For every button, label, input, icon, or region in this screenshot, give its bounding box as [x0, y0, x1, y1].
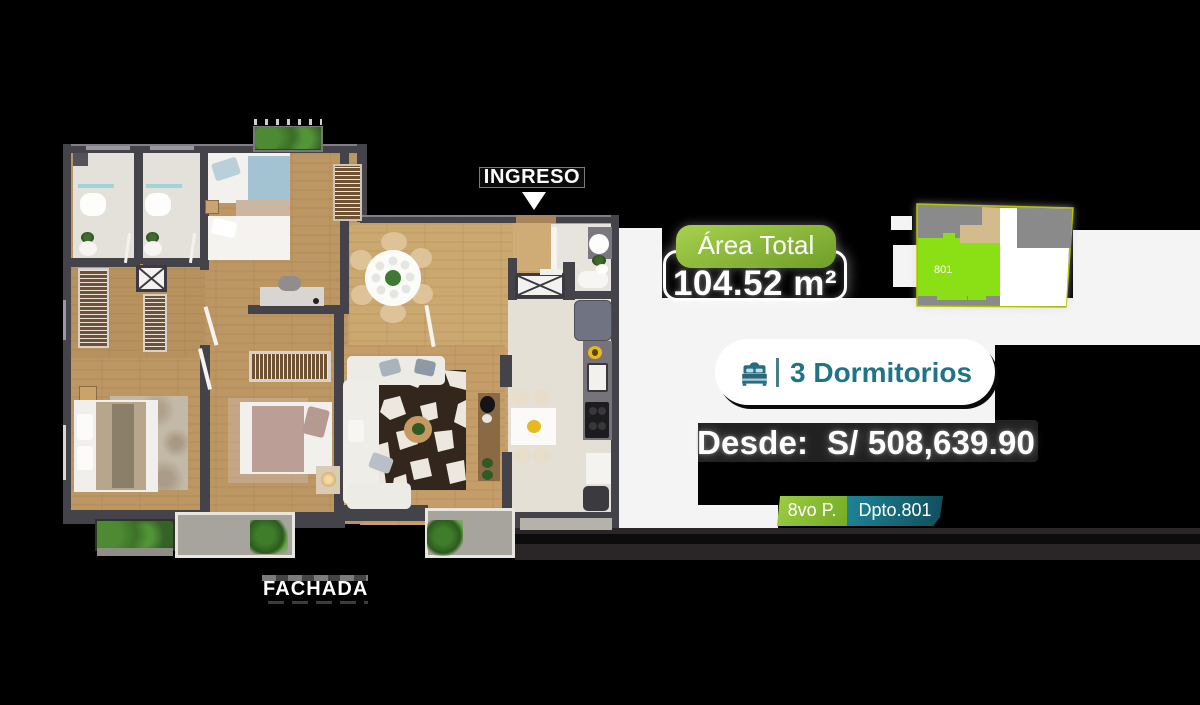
svg-text:801: 801 [934, 264, 952, 276]
